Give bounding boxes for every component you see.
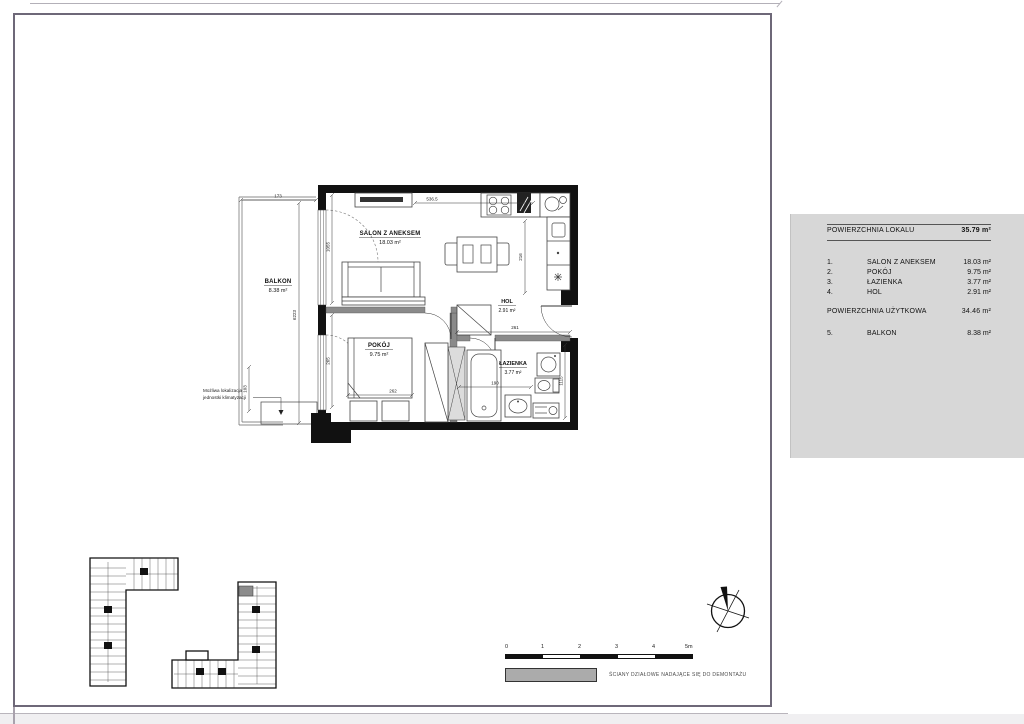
room-area-rows: 1. SALON Z ANEKSEM 18.03 m² 2. POKÓJ 9.7… [827, 258, 991, 298]
panel-rule-top [827, 224, 991, 225]
compass-icon [695, 578, 765, 644]
scan-artifact-top-line [30, 3, 780, 4]
washing-machine [537, 353, 560, 376]
room-area-balkon: 8.38 m² [269, 288, 288, 294]
room-label-salon: SALON Z ANEKSEM [360, 231, 421, 237]
dim-balcony-length: 6223 [292, 309, 297, 320]
dim-bed-width: 262 [389, 389, 397, 394]
scan-artifact-bottom-strip [0, 714, 1024, 724]
sink-counter [540, 193, 570, 217]
room-label-balkon: BALKON [265, 279, 292, 285]
dim-bath-width: 190 [491, 381, 499, 386]
table-row: 2. POKÓJ 9.75 m² [827, 268, 991, 278]
usable-area-row: POWIERZCHNIA UŻYTKOWA 34.46 m² [827, 308, 991, 315]
table-row: 4. HOL 2.91 m² [827, 288, 991, 298]
dim-salon-width: 536.5 [426, 197, 438, 202]
tv-screen [360, 197, 403, 202]
area-legend-panel: POWIERZCHNIA LOKALU 35.79 m² 1. SALON Z … [790, 214, 1024, 458]
scale-0: 0 [505, 644, 508, 650]
ac-unit-location [261, 402, 317, 424]
room-label-pokoj: POKÓJ [368, 341, 390, 349]
panel-total: 35.79 m² [961, 227, 991, 234]
dim-bath-height: 1115 [559, 376, 564, 386]
scan-artifact-top-hook [777, 1, 783, 8]
room-door-swing [425, 313, 451, 339]
bed-bench-left [350, 401, 377, 421]
ac-annotation-line2: jednostki klimatyzacji [202, 395, 246, 400]
demountable-wall-swatch [505, 668, 597, 682]
bed-bench-right [382, 401, 409, 421]
panel-title: POWIERZCHNIA LOKALU [827, 227, 914, 234]
site-key-plan [78, 548, 288, 696]
installation-shaft [448, 347, 465, 420]
room-label-lazienka: ŁAZIENKA [499, 361, 527, 367]
dim-kitchen: 216 [518, 253, 523, 261]
highlighted-unit [239, 586, 253, 596]
room-label-hol: HOL [501, 299, 513, 305]
dim-balcony-width: 173 [274, 194, 282, 199]
room-area-pokoj: 9.75 m² [370, 352, 389, 358]
usable-area-value: 34.46 m² [962, 308, 991, 315]
scale-4: 4 [652, 644, 655, 650]
balcony-area-row: 5. BALKON 8.38 m² [827, 329, 991, 339]
north-needle [721, 587, 729, 612]
room-window [318, 335, 326, 410]
building-left [90, 558, 178, 686]
scale-1: 1 [541, 644, 544, 650]
demountable-walls-legend: ŚCIANY DZIAŁOWE NADAJĄCE SIĘ DO DEMONTAŻ… [505, 668, 765, 686]
scale-bar: 0 1 2 3 4 5m [505, 644, 695, 664]
panel-rule-bottom [827, 240, 991, 241]
room-area-salon: 18.03 m² [379, 240, 401, 246]
table-row: 3. ŁAZIENKA 3.77 m² [827, 278, 991, 288]
table-row: 1. SALON Z ANEKSEM 18.03 m² [827, 258, 991, 268]
salon-window [318, 210, 326, 305]
dim-hol-width: 261 [511, 325, 519, 330]
scale-5m: 5m [685, 644, 693, 650]
room-area-lazienka: 3.77 m² [505, 370, 522, 376]
exterior-corner-block [311, 413, 351, 443]
ac-arrow-head [279, 410, 284, 415]
scan-artifact-left-tail [13, 707, 15, 724]
panel-header: POWIERZCHNIA LOKALU 35.79 m² [827, 227, 991, 234]
scale-bar-segments [505, 654, 693, 659]
bathtub [467, 350, 501, 421]
ac-annotation-line1: Możliwa lokalizacja [203, 388, 243, 393]
demountable-wall-caption: ŚCIANY DZIAŁOWE NADAJĄCE SIĘ DO DEMONTAŻ… [609, 672, 746, 678]
balcony-railing [239, 197, 316, 425]
usable-area-label: POWIERZCHNIA UŻYTKOWA [827, 308, 927, 315]
floor-plan: Możliwa lokalizacja jednostki klimatyzac… [195, 175, 590, 450]
room-area-hol: 2.91 m² [499, 308, 516, 314]
dim-balcony-bottom: 103 [243, 385, 248, 393]
radiator [533, 403, 559, 418]
scale-3: 3 [615, 644, 618, 650]
dim-salon-window: 1055 [326, 241, 331, 252]
building-right [172, 582, 276, 688]
table-row: 5. BALKON 8.38 m² [827, 329, 991, 339]
entrance-door-swing [541, 306, 572, 337]
dim-room-window: 265 [326, 357, 331, 365]
scale-2: 2 [578, 644, 581, 650]
ac-annotation: Możliwa lokalizacja jednostki klimatyzac… [202, 388, 317, 424]
toilet [535, 378, 559, 393]
